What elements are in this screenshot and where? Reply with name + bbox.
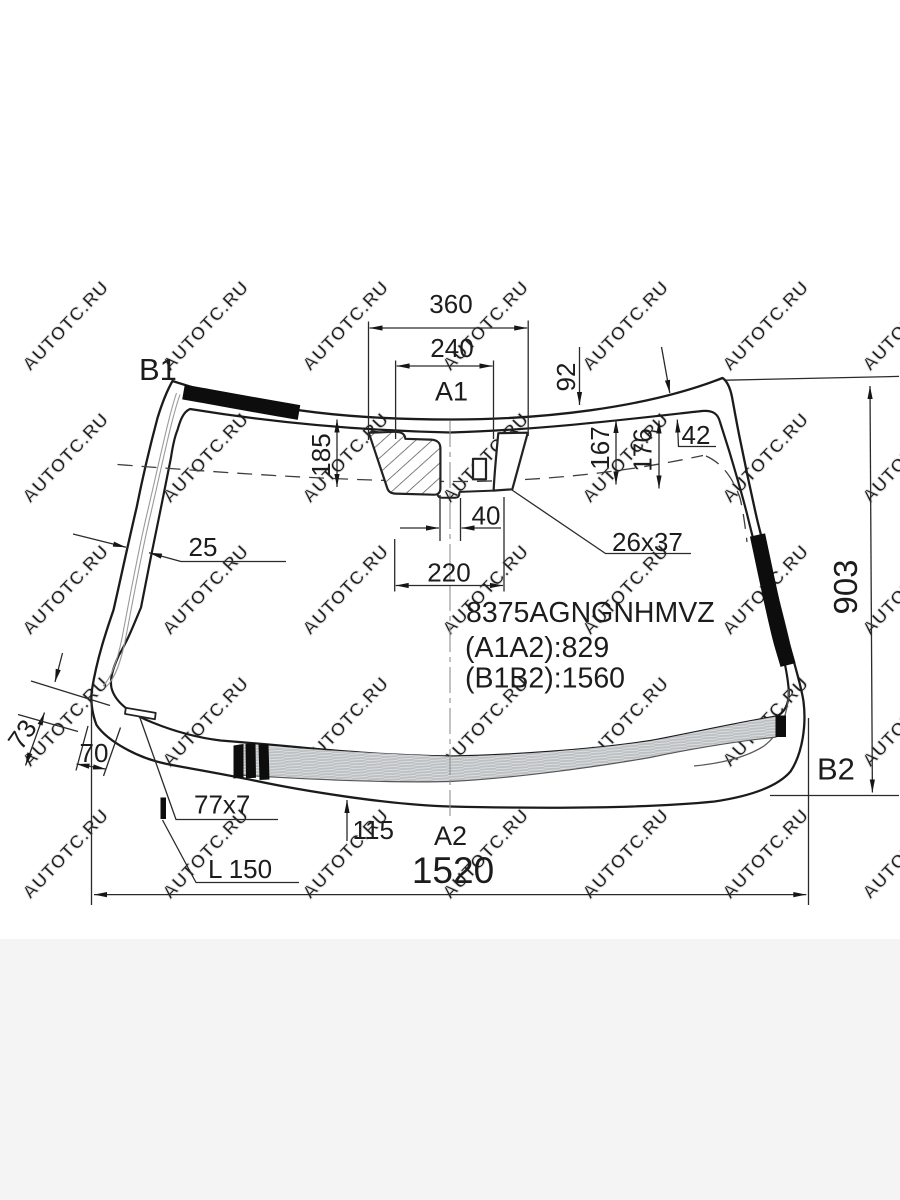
svg-text:167: 167 (585, 426, 615, 469)
svg-text:42: 42 (682, 420, 711, 450)
svg-text:185: 185 (306, 433, 336, 476)
svg-text:(B1B2):1560: (B1B2):1560 (465, 663, 625, 695)
svg-text:903: 903 (827, 559, 864, 614)
svg-text:26x37: 26x37 (612, 527, 683, 557)
svg-text:115: 115 (353, 815, 394, 845)
svg-text:360: 360 (429, 289, 472, 319)
svg-text:176: 176 (628, 428, 658, 471)
svg-text:220: 220 (427, 558, 470, 588)
svg-text:40: 40 (472, 501, 501, 531)
svg-text:B1: B1 (139, 352, 177, 387)
svg-text:A1: A1 (435, 377, 468, 407)
svg-text:240: 240 (430, 333, 473, 363)
svg-text:8375AGNGNHMVZ: 8375AGNGNHMVZ (466, 597, 715, 629)
svg-text:A2: A2 (434, 821, 467, 851)
svg-text:77x7: 77x7 (194, 790, 250, 820)
svg-text:B2: B2 (817, 752, 855, 787)
svg-text:25: 25 (189, 532, 218, 562)
svg-text:1520: 1520 (412, 850, 494, 891)
svg-text:92: 92 (551, 363, 581, 392)
svg-text:L 150: L 150 (208, 854, 272, 884)
svg-text:70: 70 (80, 738, 109, 768)
svg-text:(A1A2):829: (A1A2):829 (465, 632, 609, 664)
